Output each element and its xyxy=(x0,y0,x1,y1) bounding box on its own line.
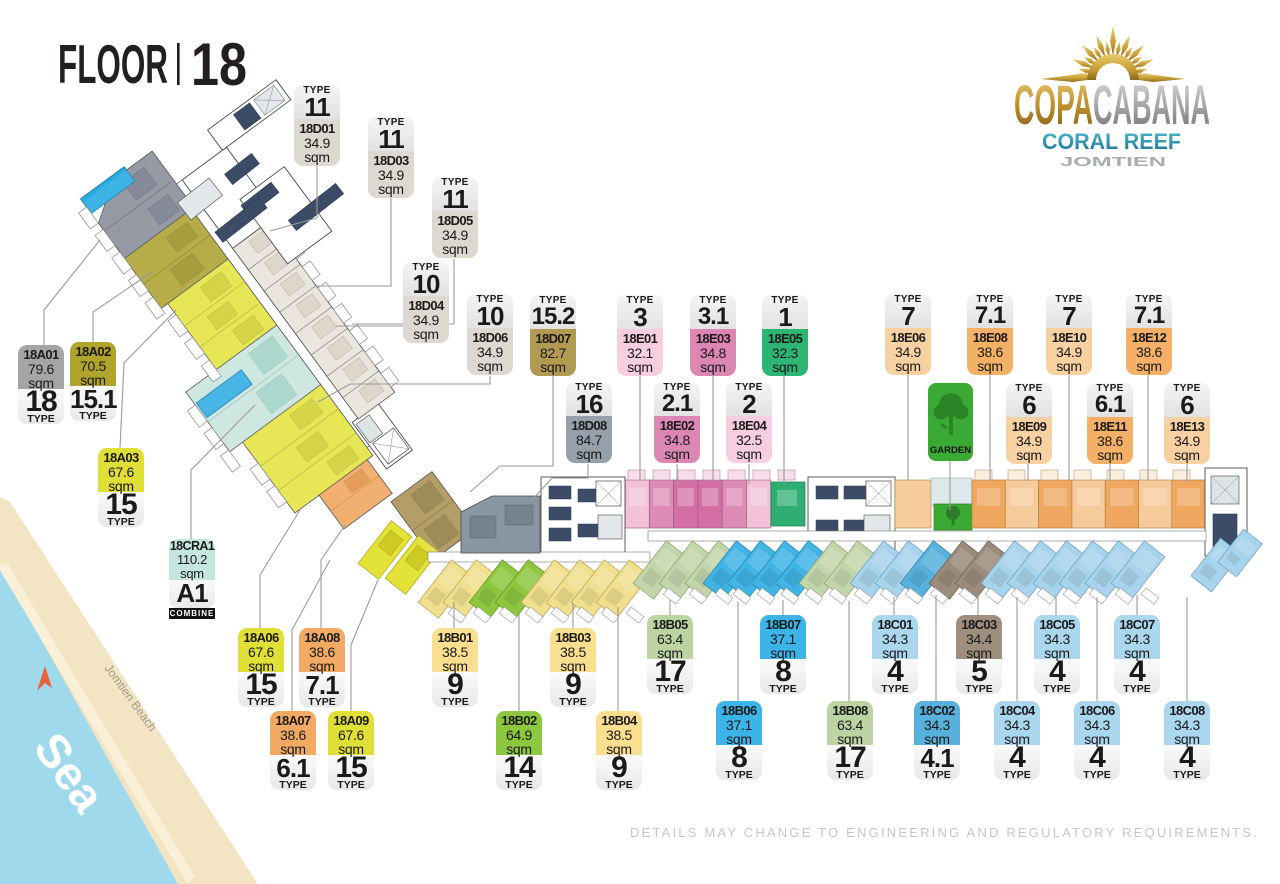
svg-text:COPA: COPA xyxy=(1014,73,1093,136)
svg-text:CORAL REEF: CORAL REEF xyxy=(1042,129,1181,154)
svg-text:FLOOR: FLOOR xyxy=(58,33,168,95)
svg-text:DETAILS MAY CHANGE TO ENGINEER: DETAILS MAY CHANGE TO ENGINEERING AND RE… xyxy=(630,825,1259,840)
svg-text:CABANA: CABANA xyxy=(1093,73,1210,136)
svg-text:18: 18 xyxy=(191,31,247,98)
svg-text:JOMTIEN: JOMTIEN xyxy=(1060,154,1166,169)
